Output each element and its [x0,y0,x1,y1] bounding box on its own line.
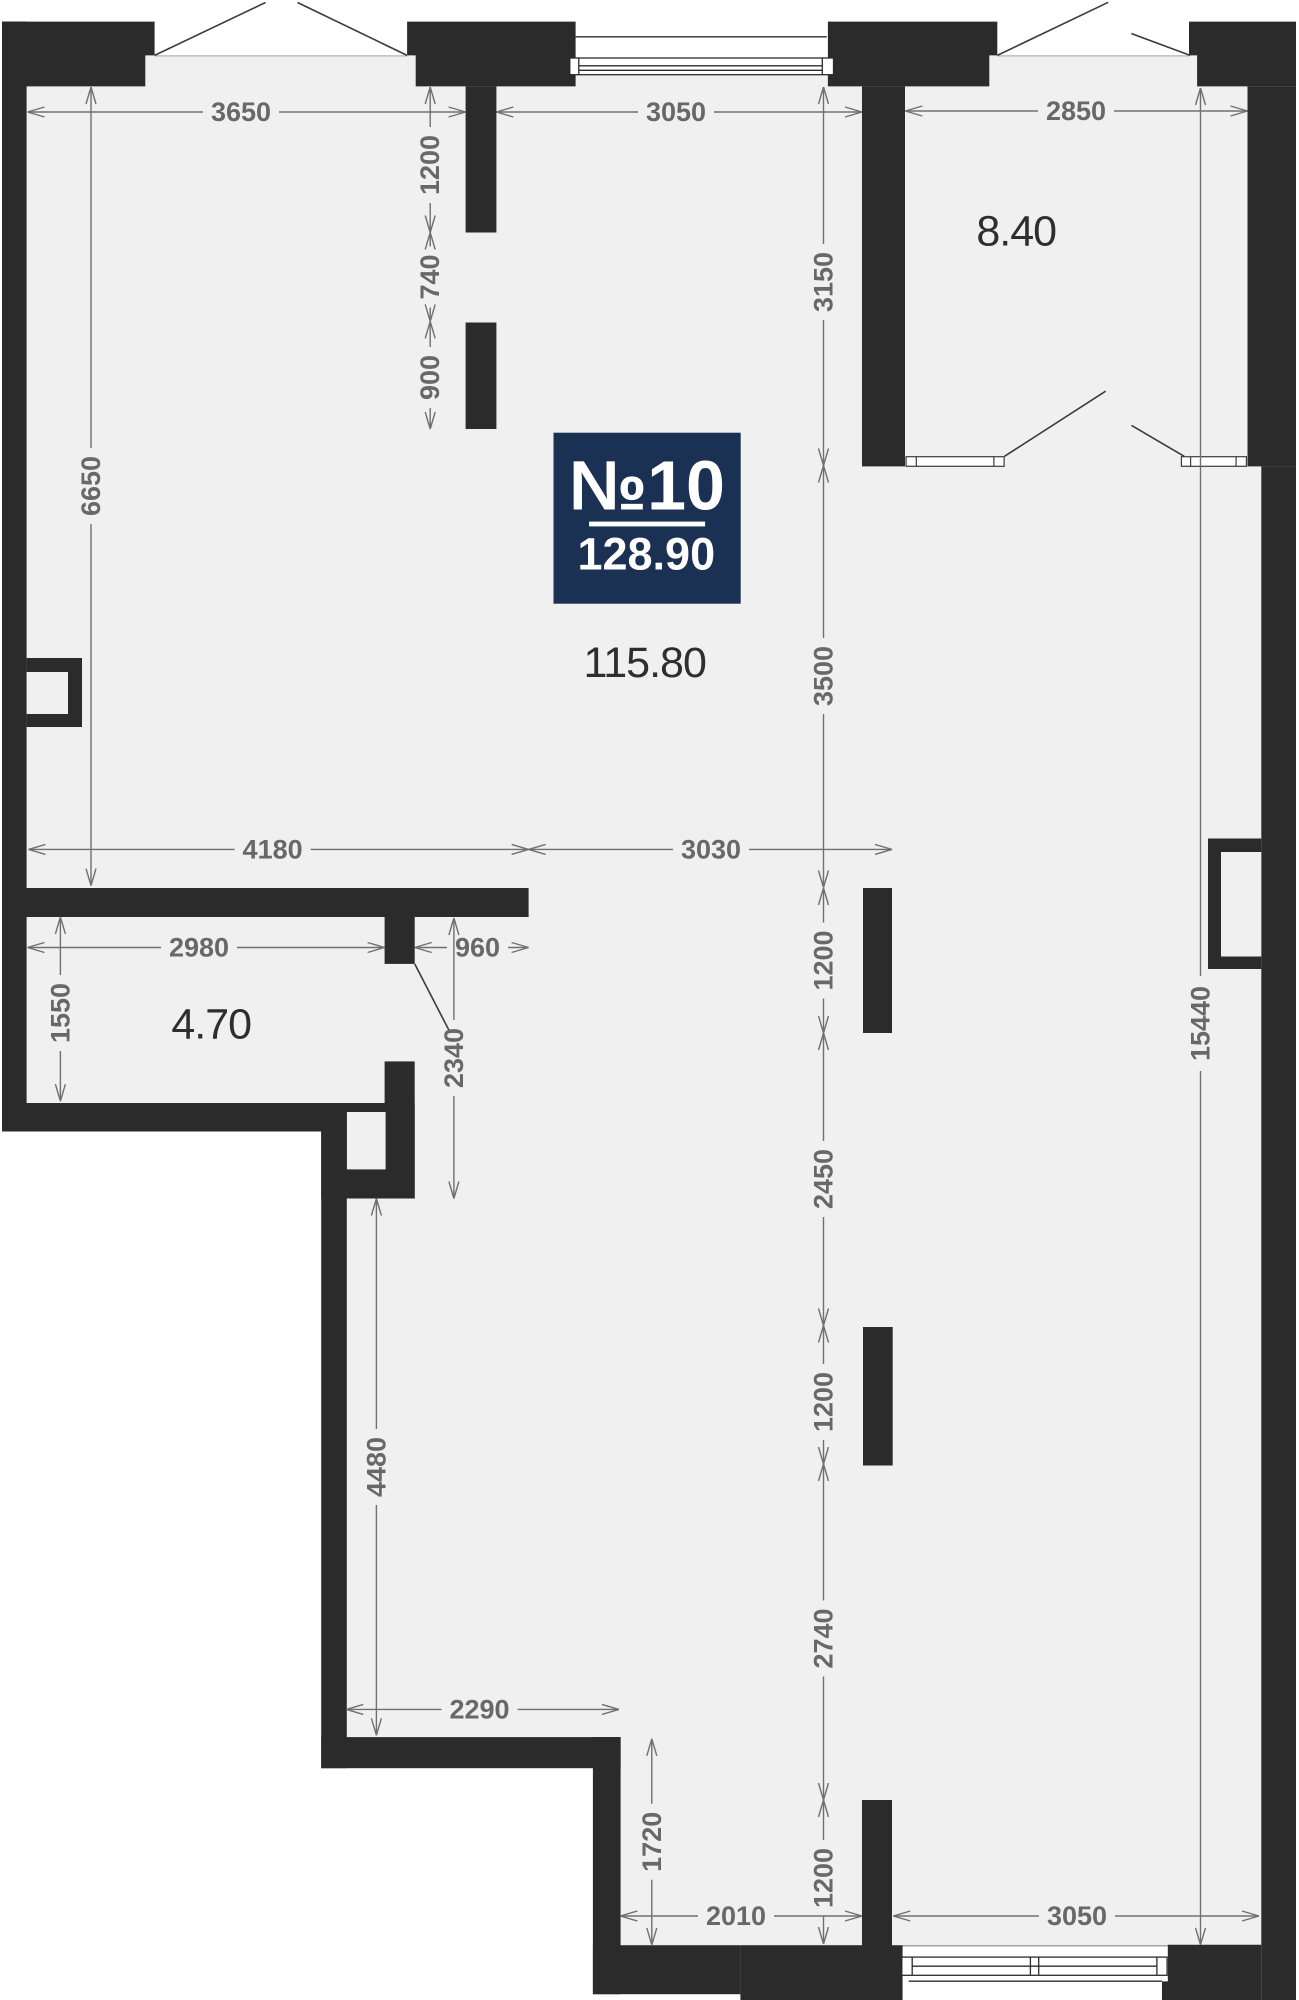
svg-text:3050: 3050 [646,97,706,127]
svg-text:3650: 3650 [211,97,271,127]
svg-text:2290: 2290 [449,1694,509,1724]
svg-text:2740: 2740 [809,1608,839,1668]
svg-text:8.40: 8.40 [976,208,1056,256]
svg-text:№10: №10 [569,447,725,525]
svg-text:4180: 4180 [243,834,303,864]
svg-text:4480: 4480 [361,1437,391,1497]
svg-text:128.90: 128.90 [577,528,715,579]
svg-text:1200: 1200 [809,1372,839,1432]
svg-text:2980: 2980 [169,933,229,963]
svg-text:1550: 1550 [45,983,75,1043]
svg-text:2010: 2010 [706,1901,766,1931]
svg-text:1200: 1200 [809,1848,839,1908]
svg-text:4.70: 4.70 [171,1001,251,1049]
svg-text:2450: 2450 [809,1149,839,1209]
svg-text:6650: 6650 [76,456,106,516]
svg-text:960: 960 [455,933,500,963]
svg-text:2850: 2850 [1046,96,1106,126]
svg-text:2340: 2340 [439,1028,469,1088]
svg-text:115.80: 115.80 [584,639,706,687]
svg-text:3030: 3030 [681,834,741,864]
svg-text:3150: 3150 [809,252,839,312]
svg-text:3050: 3050 [1047,1901,1107,1931]
svg-text:1200: 1200 [809,930,839,990]
svg-text:3500: 3500 [809,646,839,706]
svg-text:1720: 1720 [637,1812,667,1872]
svg-text:15440: 15440 [1186,986,1216,1061]
svg-text:740: 740 [415,254,445,299]
svg-text:1200: 1200 [415,135,445,195]
svg-text:900: 900 [415,355,445,400]
